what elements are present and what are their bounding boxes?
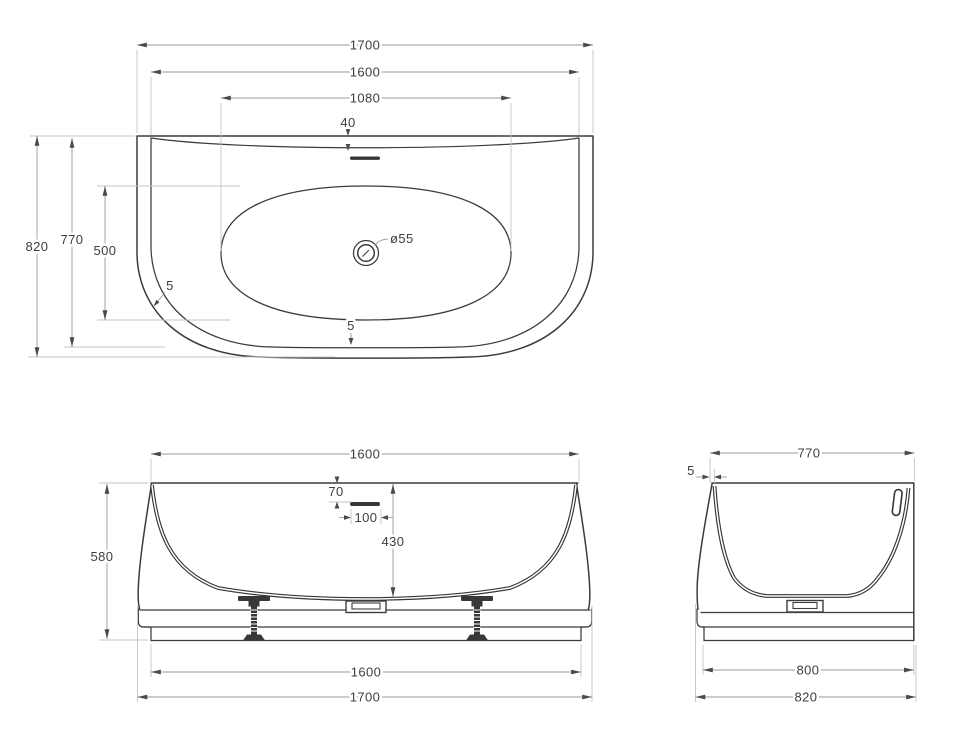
drain-trap-front [346, 601, 386, 613]
dim-arrow-40-upper [346, 129, 351, 136]
dim-label-top-basin-width: 500 [94, 243, 117, 258]
front-outer-wall-right [577, 484, 590, 609]
dim-arrow-5-front [349, 338, 354, 345]
dim-arrow-side5-right [714, 475, 721, 480]
dim-label-front-inner-depth: 430 [382, 534, 405, 549]
tub-rim-outline [151, 138, 579, 348]
dim-label-front-overall-length: 1700 [350, 690, 381, 705]
top-view: 1700 1600 1080 40 820 770 500 5 5 ø55 [26, 38, 593, 359]
dim-label-side-base-width: 800 [797, 663, 820, 678]
dim-label-top-basin-length: 1080 [350, 91, 381, 106]
side-shell-section [715, 486, 909, 596]
tub-outer-outline [137, 136, 593, 358]
dim-label-front-rim-length: 1600 [350, 447, 381, 462]
drain-trap-side [787, 601, 823, 613]
overflow-slot-front-icon [350, 502, 380, 506]
dim-label-front-overflow-length: 100 [355, 510, 378, 525]
drain-icon [354, 239, 389, 266]
dim-label-top-wall-front: 5 [347, 318, 355, 333]
bathtub-drawing: 1700 1600 1080 40 820 770 500 5 5 ø55 [0, 0, 975, 751]
dim-label-front-overall-height: 580 [91, 549, 114, 564]
technical-drawing-page: 1700 1600 1080 40 820 770 500 5 5 ø55 [0, 0, 975, 751]
dim-label-side-overall-width: 820 [795, 690, 818, 705]
adjustable-foot-right [461, 596, 493, 641]
drain-leader-line [375, 239, 388, 245]
side-outer-wall-front [697, 484, 712, 609]
side-view: 770 5 800 820 [687, 446, 916, 705]
dim-label-top-rim-offset: 40 [340, 115, 355, 130]
front-plinth-left-face [138, 609, 151, 641]
dim-label-top-overall-length: 1700 [350, 38, 381, 53]
front-plinth-right-face [581, 609, 592, 641]
dim-label-side-wall-thickness: 5 [687, 463, 695, 478]
dim-label-top-wall-corner: 5 [166, 278, 174, 293]
overflow-slot-side-icon [892, 489, 903, 516]
dim-arrow-70-lower [335, 502, 340, 509]
dim-label-drain-diameter: ø55 [390, 231, 414, 246]
dim-arrow-side5-left [703, 475, 710, 480]
dim-label-top-overall-width: 820 [26, 239, 49, 254]
overflow-slot-top-icon [350, 157, 380, 160]
side-plinth-left-face [697, 609, 704, 641]
dim-label-side-rim-width: 770 [798, 446, 821, 461]
dim-arrow-100-right [381, 515, 388, 520]
dim-label-front-base-length: 1600 [351, 665, 382, 680]
dim-arrow-100-left [344, 515, 351, 520]
dim-label-front-overflow-drop: 70 [328, 484, 343, 499]
dim-label-top-rim-length: 1600 [350, 65, 381, 80]
front-view: 1600 70 100 430 580 1600 1700 [91, 447, 592, 705]
front-outer-wall-left [138, 484, 151, 609]
adjustable-foot-left [238, 596, 270, 641]
dim-label-top-rim-width: 770 [61, 232, 84, 247]
